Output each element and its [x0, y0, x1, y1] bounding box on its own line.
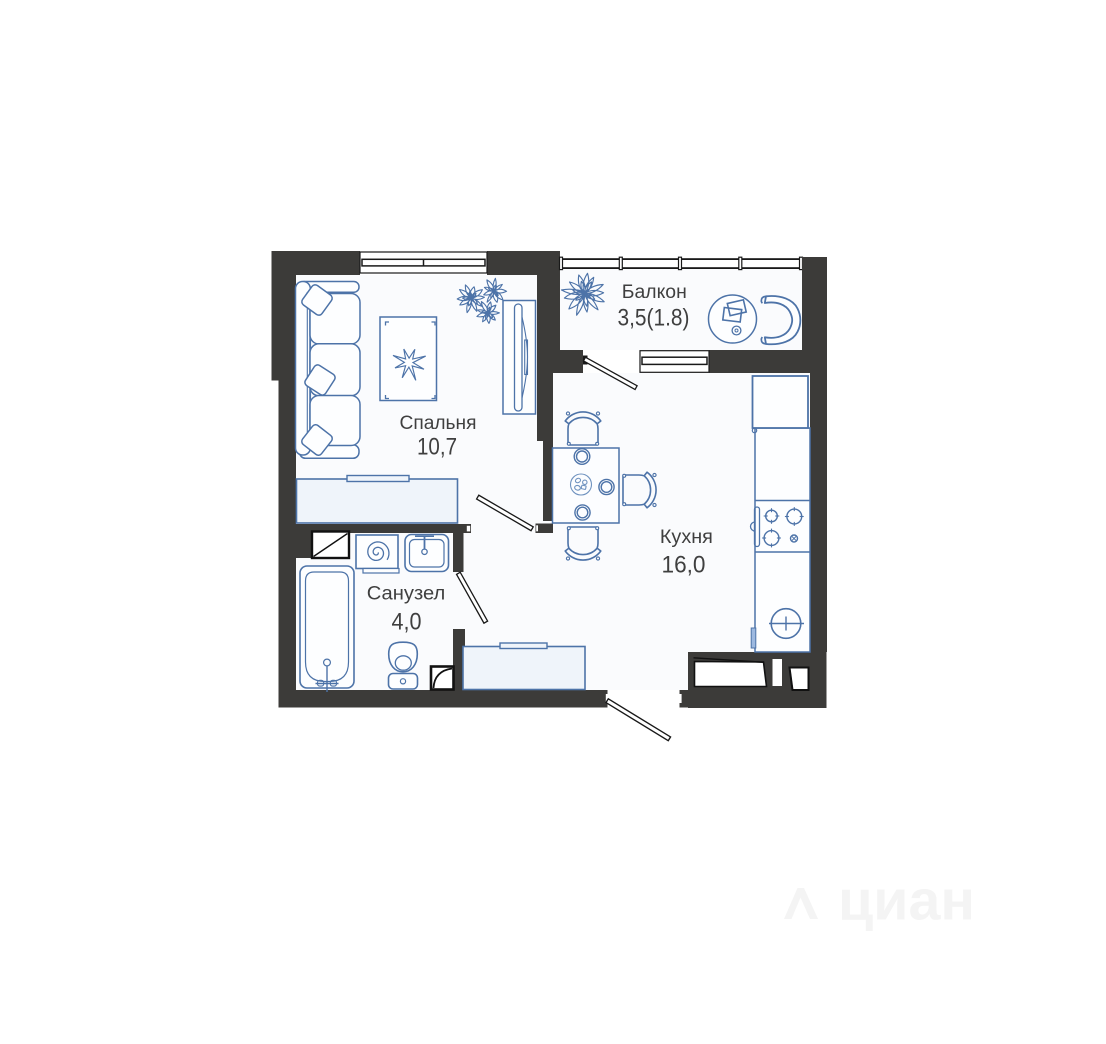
svg-text:16,0: 16,0: [662, 552, 706, 579]
svg-text:Кухня: Кухня: [660, 527, 713, 548]
svg-text:Спальня: Спальня: [400, 413, 477, 434]
svg-text:Санузел: Санузел: [367, 584, 446, 605]
svg-text:циан: циан: [838, 869, 975, 933]
svg-text:3,5(1.8): 3,5(1.8): [618, 305, 690, 332]
svg-text:Балкон: Балкон: [622, 282, 687, 303]
svg-text:10,7: 10,7: [417, 434, 457, 461]
svg-text:4,0: 4,0: [392, 609, 422, 636]
